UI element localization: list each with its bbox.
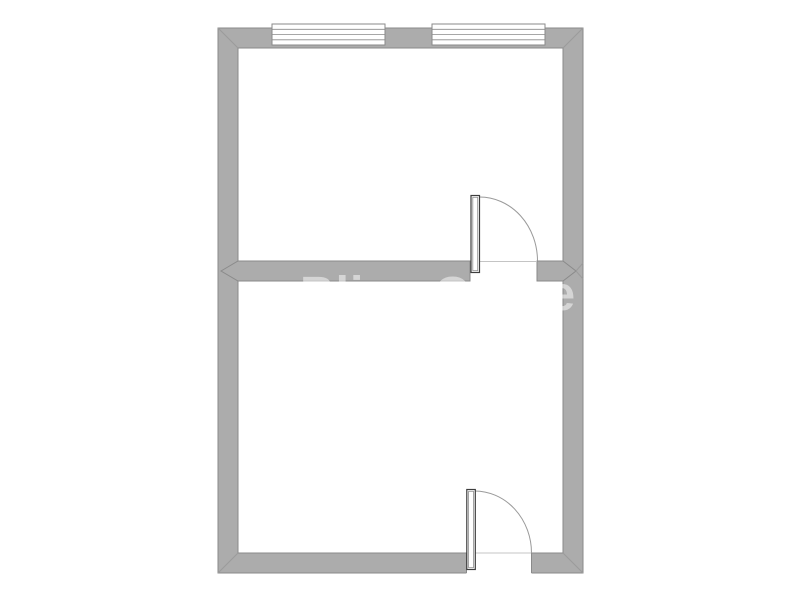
window-2 — [432, 24, 545, 45]
floor-plan: Bliss Office — [0, 0, 800, 600]
upper-room-door — [471, 196, 538, 273]
floor-plan-canvas: Bliss Office — [0, 0, 800, 600]
lower-door-swing-arc — [475, 491, 532, 553]
window-1 — [272, 24, 385, 45]
upper-door-leaf — [471, 196, 480, 273]
watermark: Bliss Office — [300, 268, 576, 321]
lower-door-opening — [467, 552, 532, 574]
upper-door-swing-arc — [480, 197, 538, 261]
lower-door-leaf — [467, 490, 476, 570]
